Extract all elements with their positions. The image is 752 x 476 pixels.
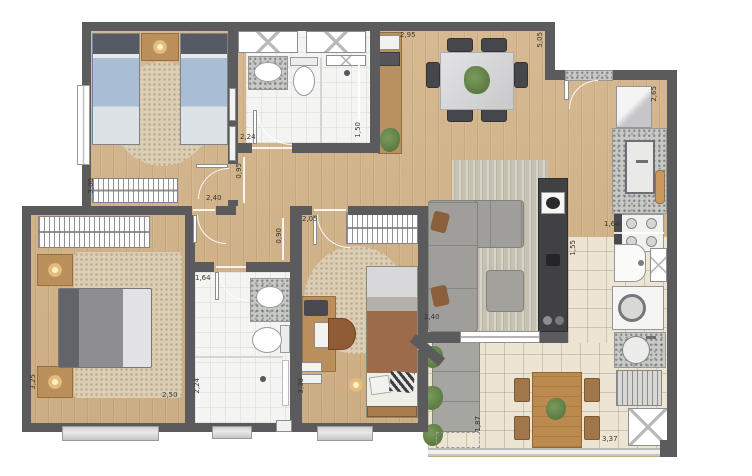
twin-bed-right: [180, 33, 228, 145]
printer-icon: [304, 300, 328, 316]
laundry-faucet-icon: [646, 336, 656, 339]
double-bed: [58, 288, 152, 368]
wall: [22, 206, 192, 215]
toilet-icon: [293, 66, 315, 96]
dim-balcony-width: 3,37: [602, 435, 618, 443]
wall: [428, 332, 460, 343]
bed-frame: [367, 406, 417, 417]
dim-shower: 1,50: [354, 122, 362, 138]
wall: [660, 440, 677, 457]
dim-hall2-width: 0,90: [275, 228, 283, 244]
wardrobe-bedroom1: [92, 178, 178, 203]
duct-shaft: [276, 420, 292, 432]
dim-living-width: 2,40: [424, 313, 440, 321]
bathroom1-window-2: [306, 31, 366, 53]
wall: [246, 262, 290, 272]
vent-shaft: [326, 55, 366, 66]
tv-screen: [546, 197, 560, 209]
washer-door: [618, 294, 646, 322]
pillow-icon: [369, 375, 391, 396]
wall: [292, 143, 378, 153]
outside-left: [0, 0, 22, 476]
dim-balcony-depth: 1,87: [474, 416, 482, 432]
bathroom2-window: [212, 426, 252, 439]
dim-bathroom1: 2,24: [240, 133, 256, 141]
louver-cabinet-icon: [616, 370, 662, 406]
dim-hall-width: 0,95: [235, 163, 243, 179]
floor-plan: 2,95 5,05 2,65 1,50 2,24 0,95 2,40 3,00 …: [0, 0, 752, 476]
dining-chair: [447, 38, 473, 52]
dimension-arrow: [243, 157, 245, 203]
office-window: [317, 426, 373, 441]
decor-icon: [555, 316, 564, 325]
bread-board-icon: [655, 170, 665, 204]
dim-bedroom1-depth: 3,00: [87, 178, 95, 194]
balcony-chair: [514, 416, 530, 440]
dining-chair: [514, 62, 528, 88]
dim-bathroom2-depth: 2,24: [193, 378, 201, 394]
sink-icon: [254, 62, 282, 82]
twin-bed-left: [92, 33, 140, 145]
shower-head-icon: [344, 70, 350, 76]
dining-chair: [447, 108, 473, 122]
wall: [667, 70, 677, 457]
lamp-icon: [48, 263, 62, 277]
wardrobe-master: [38, 216, 150, 248]
burner-icon: [626, 218, 637, 229]
dim-office-depth: 3,30: [297, 378, 305, 394]
lamp-icon: [48, 375, 62, 389]
shower-door: [282, 360, 289, 406]
chevron-pillow-icon: [389, 371, 415, 393]
dining-chair: [481, 38, 507, 52]
bedroom1-window: [77, 85, 90, 165]
wall: [185, 262, 214, 272]
sink-icon: [256, 286, 284, 308]
bathroom1-window: [238, 31, 298, 53]
burner-icon: [646, 236, 657, 247]
dim-bathroom2-width: 1,64: [195, 274, 211, 282]
outside-bottom: [0, 457, 752, 476]
wall: [302, 206, 312, 215]
faucet-icon: [636, 160, 648, 163]
balcony-sliding-door: [460, 331, 540, 343]
optional-furniture-outline: [436, 432, 480, 448]
burner-icon: [646, 218, 657, 229]
shower-head-icon: [260, 376, 266, 382]
dimension-arrow: [314, 209, 346, 211]
decor-icon: [543, 316, 552, 325]
duct-shaft: [650, 248, 667, 282]
wall: [82, 22, 553, 31]
appliance-icon: [379, 35, 400, 50]
balcony-chair: [584, 378, 600, 402]
wall: [216, 206, 236, 215]
ottoman: [486, 270, 524, 312]
dim-kitchen-width: 1,64: [604, 220, 620, 228]
floor-lamp-icon: [349, 378, 363, 392]
balcony-railing: [428, 448, 677, 456]
outside-right: [677, 0, 752, 476]
wall: [418, 206, 428, 343]
balcony-chair: [584, 416, 600, 440]
dim-master-width: 2,50: [162, 391, 178, 399]
outside-top-right-notch: [555, 22, 677, 70]
duct-shaft: [229, 126, 236, 161]
wall: [22, 206, 31, 432]
duct-shaft: [229, 88, 236, 121]
toilet-tank: [290, 57, 318, 66]
wall: [370, 22, 380, 153]
outside-top: [0, 0, 752, 22]
balcony-chair: [514, 378, 530, 402]
shower-glass: [195, 356, 283, 358]
dim-bedroom1-width: 2,40: [206, 194, 222, 202]
dimension-arrow: [216, 266, 246, 268]
dim-office-door: 2,05: [302, 215, 318, 223]
dim-master-depth: 3,25: [29, 374, 37, 390]
wall: [540, 332, 568, 343]
tub-knob: [638, 260, 644, 266]
dining-chair: [481, 108, 507, 122]
lamp-icon: [153, 40, 167, 54]
kitchen-sink-icon: [625, 140, 655, 194]
desk-chair: [328, 318, 356, 350]
dim-dining-width: 2,95: [400, 31, 416, 39]
entry-threshold: [565, 70, 613, 81]
appliance-icon-2: [379, 52, 400, 66]
dim-corridor: 1,55: [569, 240, 577, 256]
master-window: [62, 426, 159, 441]
wardrobe-office: [346, 212, 418, 244]
dining-chair: [426, 62, 440, 88]
dim-kitchen-depth: 2,65: [650, 86, 658, 102]
wall: [238, 143, 252, 153]
wall: [545, 22, 555, 80]
wall: [555, 70, 565, 80]
shelf-object-icon: [546, 254, 560, 266]
entry-door: [564, 80, 569, 100]
outside-top-left-notch: [22, 22, 82, 206]
wall: [418, 350, 428, 432]
laundry-basin-icon: [622, 336, 650, 364]
dimension-arrow: [193, 209, 215, 211]
table-plant-icon: [464, 66, 490, 94]
refrigerator-icon: [616, 86, 652, 128]
dim-dining-depth: 5,05: [536, 32, 544, 48]
wall: [348, 206, 420, 215]
dimension-arrow: [614, 232, 664, 234]
dimension-arrow: [252, 147, 292, 149]
shower-glass: [320, 58, 322, 143]
toilet-icon: [252, 327, 282, 353]
